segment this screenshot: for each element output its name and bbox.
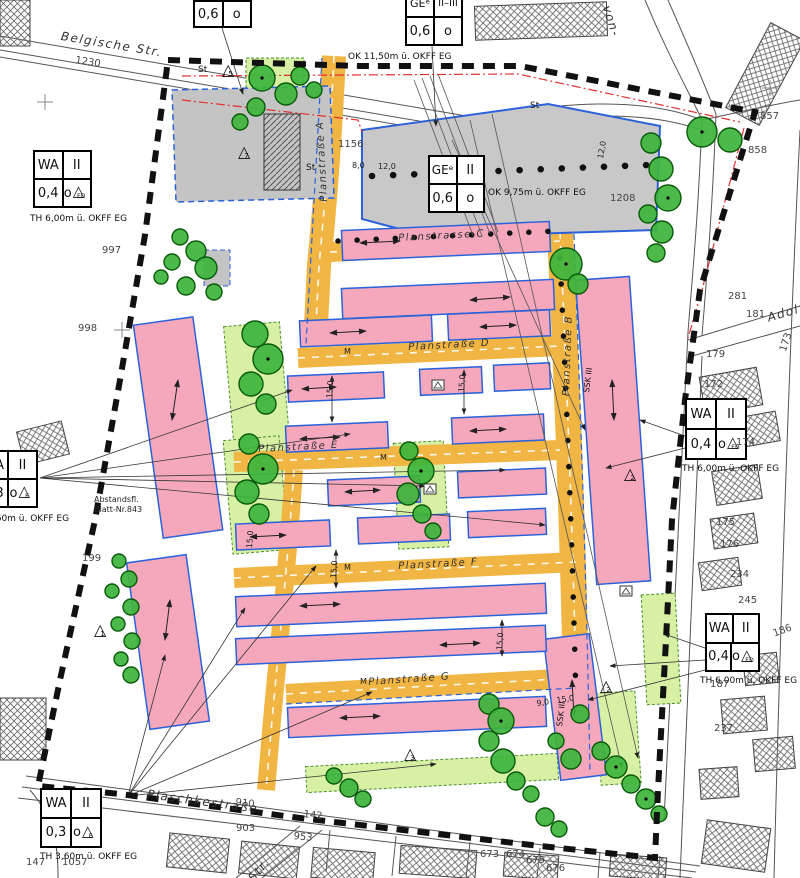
dimension-label: 12,0 <box>378 163 396 171</box>
parcel-number: 237 <box>714 724 733 734</box>
dimension-label: 15,0 <box>326 380 335 398</box>
m-marker: M <box>380 454 387 462</box>
zoning-box-wa-left: WAII 0,4 o△ED <box>33 150 92 208</box>
m-marker: M <box>344 348 351 356</box>
dimension-label: 15,0 <box>246 530 255 548</box>
st-label: St <box>306 164 315 173</box>
parcel-number: 187 <box>710 680 729 690</box>
dimension-label: 8,0 <box>352 162 365 170</box>
triangle-symbol: △ED <box>741 650 758 664</box>
zoning-box-ge-top: GEᵉII–III 0,6o <box>405 0 463 46</box>
parcel-number: 245 <box>738 596 757 606</box>
parcel-number: 234 <box>730 570 749 580</box>
zoning-caption-wa-right: TH 6,00m ü. OKFF EG <box>682 464 779 474</box>
parcel-number: 1156 <box>338 140 363 150</box>
zoning-caption-ge-mid: OK 9,75m ü. OKFF EG <box>488 188 586 198</box>
numbered-triangle-icon: △5 <box>222 64 239 79</box>
parcel-number: 172 <box>704 380 723 390</box>
parcel-number: 998 <box>78 324 97 334</box>
parcel-number: 175 <box>716 518 735 528</box>
numbered-triangle-icon: △7 <box>238 146 255 161</box>
dimension-label: 15,0 <box>330 560 339 578</box>
dimension-label: 15,0 <box>496 632 505 650</box>
parcel-number: 174 <box>736 438 755 448</box>
parcel-number: 997 <box>102 246 121 256</box>
parcel-number: 676 <box>546 864 565 874</box>
site-plan-canvas <box>0 0 800 878</box>
zoning-box-wa-edge: WAII 0,3 o△E <box>0 450 38 508</box>
parcel-number: 179 <box>706 350 725 360</box>
zoning-box-wa-right: WAII 0,4 o△ED <box>685 398 747 460</box>
zoning-caption-ge-top: OK 11,50m ü. OKFF EG <box>348 52 452 62</box>
parcel-number: 910 <box>235 798 255 810</box>
parcel-number: 857 <box>760 112 779 122</box>
zoning-caption-wa-edge: TH 3,60m ü. OKFF EG <box>0 514 69 524</box>
zoning-caption-wa-left: TH 6,00m ü. OKFF EG <box>30 214 127 224</box>
parcel-number: 1057 <box>62 858 87 868</box>
parcel-number: 181 <box>746 310 765 320</box>
numbered-triangle-icon: △1 <box>94 624 111 639</box>
zoning-box-wa-bottom: WAII 0,3 o△E <box>40 788 102 848</box>
parcel-number: 147 <box>26 858 45 868</box>
numbered-triangle-icon: △2 <box>600 680 617 695</box>
dimension-label: 15,0 <box>458 374 467 392</box>
zoning-box-ge-mid: GEᵉII 0,6o <box>428 155 485 213</box>
parcel-number: 1208 <box>610 194 635 204</box>
numbered-triangle-icon: △3 <box>404 748 421 763</box>
triangle-symbol: △ED <box>73 186 90 200</box>
zoning-box-wa-right2: WAII 0,4 o△ED <box>705 613 760 672</box>
parcel-number: 673 <box>480 850 499 860</box>
parcel-number: 142 <box>303 810 323 822</box>
parcel-number: 176 <box>720 540 739 550</box>
abstandsflaeche-note: Abstandsfl. <box>94 496 139 504</box>
numbered-triangle-icon: △2 <box>624 468 641 483</box>
parcel-number: 674 <box>506 850 525 860</box>
parcel-number: 199 <box>82 554 101 564</box>
st-label: St <box>530 102 539 111</box>
parcel-number: 858 <box>748 146 767 156</box>
parcel-number: 903 <box>236 824 255 834</box>
m-marker: M <box>360 678 367 686</box>
parcel-number: 953 <box>293 832 313 844</box>
parcel-number: 675 <box>526 856 545 866</box>
zoning-caption-wa-bottom: TH 3,60m ü. OKFF EG <box>40 852 137 862</box>
abstandsflaeche-note: Blatt-Nr.843 <box>94 506 142 514</box>
zoning-box-top: 0,6o <box>193 0 252 28</box>
m-marker: M <box>344 564 351 572</box>
triangle-symbol: △E <box>82 826 99 840</box>
development-plan-map: Belgische Str. Plaschkestraße Adolf- von… <box>0 0 800 878</box>
st-label: St <box>198 66 207 75</box>
triangle-symbol: △E <box>18 486 35 500</box>
parcel-number: 281 <box>728 292 747 302</box>
